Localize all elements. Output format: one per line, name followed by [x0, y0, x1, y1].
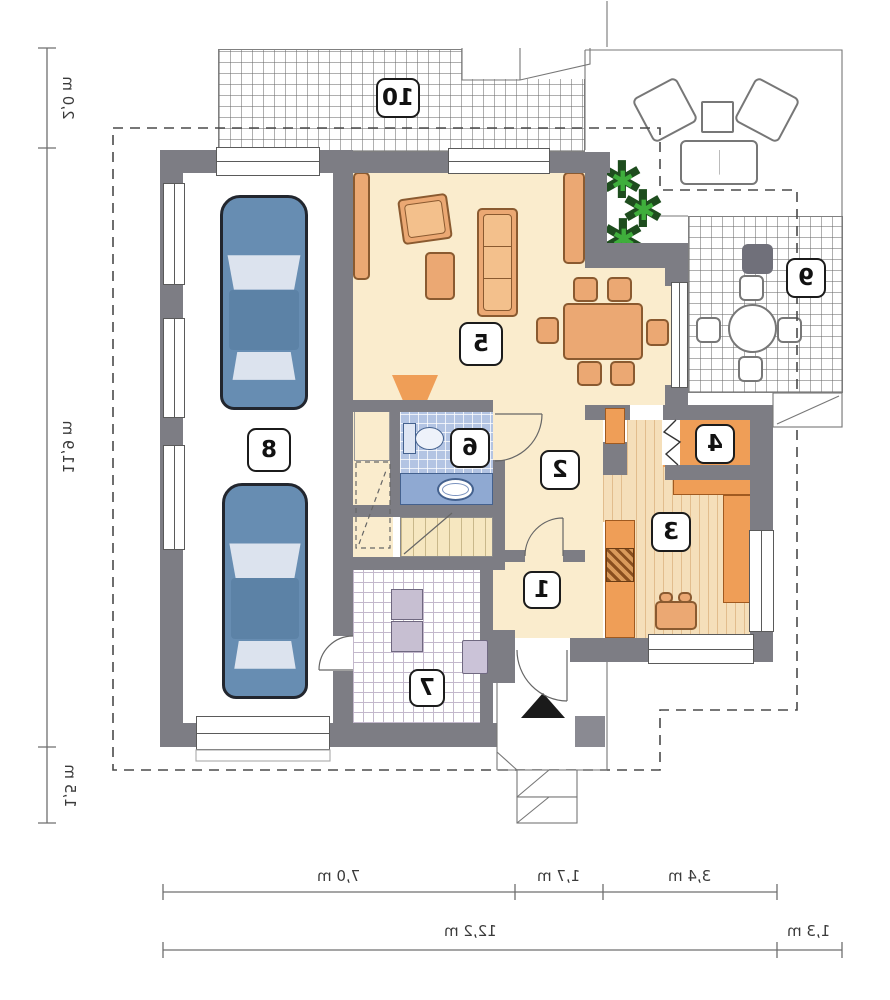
- stove: [606, 548, 634, 582]
- dining-chair: [536, 317, 559, 344]
- dryer: [391, 621, 423, 652]
- window: [216, 147, 320, 176]
- porch-pillar: [575, 716, 605, 747]
- dimension-line-bottom-2: [163, 942, 842, 958]
- car-windshield: [224, 255, 303, 289]
- patio-table: [701, 101, 734, 133]
- washing-machine: [391, 589, 423, 620]
- window: [749, 530, 774, 632]
- terrace-step-diagonal: [777, 396, 839, 424]
- dining-chair: [610, 361, 635, 386]
- room-number: 5: [473, 331, 489, 357]
- dim-label-bottom-34m: 3,4 m: [655, 867, 725, 885]
- terrace-chair: [739, 275, 764, 301]
- room-label-10: 10: [376, 78, 420, 118]
- entry-step: [517, 797, 577, 823]
- wall-segment: [353, 400, 493, 412]
- entry-step-diagonals: [517, 770, 549, 823]
- dining-chair: [607, 277, 632, 302]
- entrance-arrow-icon: [521, 693, 565, 718]
- room-number: 2: [552, 457, 568, 483]
- living-room-floor: [353, 170, 585, 405]
- patio-armchair: [631, 76, 699, 144]
- wall-segment: [333, 152, 450, 173]
- wall-segment: [505, 550, 525, 562]
- dining-table: [563, 303, 643, 360]
- floor-plan: ✱ ✱ ✱ ✱ ✱ ✱: [0, 0, 890, 1000]
- sofa: [477, 208, 518, 317]
- fridge: [605, 408, 625, 444]
- wall-segment: [585, 152, 607, 248]
- window: [163, 445, 185, 550]
- terrace-step: [773, 393, 842, 427]
- sink-basin: [442, 483, 469, 496]
- terrace-sliding-door: [448, 148, 550, 174]
- wall-segment: [665, 465, 750, 480]
- toilet-bowl: [415, 427, 444, 450]
- dim-text: 1,7 m: [537, 867, 580, 885]
- wall-segment: [390, 412, 400, 505]
- wall-segment: [585, 243, 688, 268]
- dim-label-bottom-7m: 7,0 m: [304, 867, 374, 885]
- dim-label-bottom-17m: 1,7 m: [524, 867, 594, 885]
- room-label-1: 1: [523, 571, 561, 609]
- kitchen-chair: [678, 592, 692, 603]
- window: [648, 634, 754, 664]
- room-number: 6: [462, 435, 478, 461]
- room-number: 3: [663, 519, 679, 545]
- door-arc: [517, 650, 567, 701]
- room-label-6: 6: [450, 428, 490, 468]
- car: [220, 195, 308, 410]
- terrace-chair: [777, 317, 802, 343]
- room-number: 7: [419, 675, 435, 701]
- room-label-2: 2: [540, 450, 580, 490]
- car-windshield: [226, 543, 303, 578]
- car-roof: [231, 578, 300, 638]
- grill: [742, 244, 773, 274]
- car-roof: [229, 290, 299, 350]
- kitchen-doorway-floor: [603, 475, 629, 522]
- room-label-7: 7: [409, 669, 445, 707]
- patio-armchair: [733, 76, 801, 144]
- wall-segment: [603, 442, 627, 475]
- dim-label-left-middle: 11,9 m: [59, 412, 77, 482]
- dining-chair: [573, 277, 598, 302]
- kitchen-chair: [659, 592, 673, 603]
- roof-notch: [462, 48, 607, 79]
- terrace-right: [688, 216, 843, 393]
- garage-door: [196, 716, 330, 750]
- garage-apron: [196, 750, 330, 761]
- bathroom-sink: [437, 478, 474, 501]
- room-number: 4: [707, 431, 723, 457]
- wall-segment: [750, 408, 773, 538]
- dim-label-bottom-13m: 1,3 m: [774, 922, 844, 940]
- dim-text: 12,2 m: [444, 922, 497, 940]
- wall-segment: [353, 557, 493, 570]
- kitchen-table: [655, 601, 697, 630]
- window: [163, 318, 185, 418]
- pantry-zigzag-band: [662, 420, 680, 465]
- dim-text: 3,4 m: [668, 867, 711, 885]
- wall-segment: [493, 460, 505, 505]
- wall-segment: [353, 505, 505, 517]
- staircase: [400, 517, 493, 557]
- dim-label-bottom-122m: 12,2 m: [435, 922, 505, 940]
- room-label-3: 3: [651, 512, 691, 552]
- room-number: 9: [798, 265, 814, 291]
- patio-sofa: [680, 140, 758, 185]
- wall-segment: [493, 505, 505, 570]
- dining-chair: [646, 319, 669, 346]
- room-label-9: 9: [786, 258, 826, 298]
- entry-step: [517, 770, 577, 797]
- car: [222, 483, 308, 699]
- coffee-table: [425, 252, 455, 300]
- dim-text: 7,0 m: [317, 867, 360, 885]
- car-rear-window: [231, 352, 298, 380]
- terrace-round-table: [728, 304, 777, 353]
- sofa-cushions: [483, 214, 512, 311]
- car-rear-window: [232, 641, 297, 669]
- terrace-chair: [738, 356, 763, 382]
- dimension-line-left: [38, 48, 56, 823]
- window: [163, 183, 185, 285]
- utility-door-panel: [462, 640, 488, 674]
- room-number: 1: [534, 577, 550, 603]
- room-number: 8: [261, 437, 277, 463]
- terrace-chair: [696, 317, 721, 343]
- tv-cabinet: [353, 172, 370, 280]
- room-label-5: 5: [459, 322, 503, 366]
- dim-label-left-top: 2,0 m: [59, 63, 77, 133]
- terrace-sliding-door: [671, 282, 688, 388]
- dimension-line-bottom-1: [163, 884, 777, 900]
- dim-label-left-bottom: 1,5 m: [61, 751, 79, 821]
- room-number: 10: [382, 85, 414, 111]
- dim-text: 1,3 m: [787, 922, 830, 940]
- room-label-4: 4: [695, 424, 735, 464]
- armchair: [397, 193, 453, 246]
- room-label-8: 8: [247, 428, 291, 472]
- wall-segment: [563, 550, 585, 562]
- armchair-seat: [404, 200, 446, 239]
- sideboard: [563, 172, 585, 264]
- dining-chair: [577, 361, 602, 386]
- door-opening: [333, 636, 353, 671]
